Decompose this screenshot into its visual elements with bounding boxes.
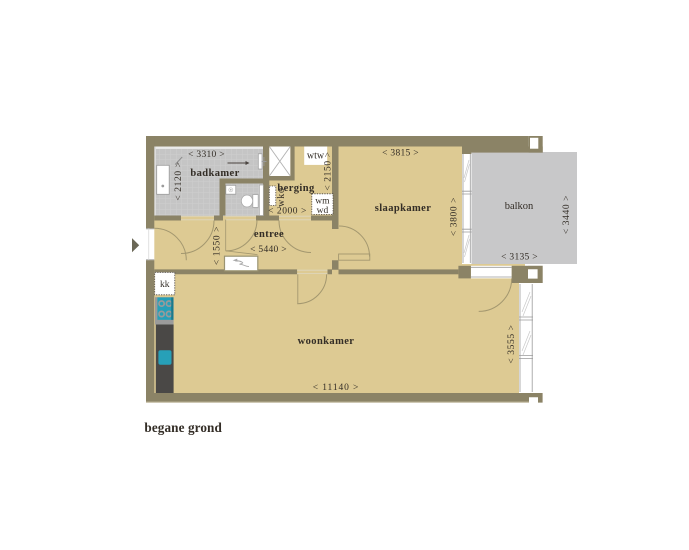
svg-text:slaapkamer: slaapkamer [375, 203, 432, 214]
svg-text:< 3135 >: < 3135 > [501, 252, 538, 262]
svg-text:wm: wm [315, 196, 330, 206]
svg-text:< 3800 >: < 3800 > [449, 197, 459, 236]
svg-text:< 3815 >: < 3815 > [382, 149, 419, 159]
svg-text:balkon: balkon [505, 201, 534, 212]
svg-text:begane grond: begane grond [144, 420, 222, 435]
svg-text:< 1550 >: < 1550 > [213, 226, 223, 265]
svg-text:< 2000 >: < 2000 > [268, 206, 307, 216]
svg-text:< 11140 >: < 11140 > [313, 383, 360, 393]
svg-text:wtw: wtw [307, 151, 325, 162]
svg-text:< 3440 >: < 3440 > [562, 195, 572, 234]
svg-text:wd: wd [317, 206, 329, 216]
svg-text:< 2120 >: < 2120 > [174, 161, 184, 200]
svg-text:< 2150 >: < 2150 > [324, 151, 334, 190]
svg-text:kk: kk [160, 280, 170, 290]
svg-text:< 3555 >: < 3555 > [507, 324, 517, 363]
svg-text:< 5440 >: < 5440 > [250, 245, 287, 255]
svg-text:wko: wko [276, 187, 287, 207]
svg-text:< 3310 >: < 3310 > [188, 150, 225, 160]
svg-text:badkamer: badkamer [190, 168, 239, 179]
svg-text:entree: entree [254, 229, 284, 240]
svg-text:woonkamer: woonkamer [298, 336, 355, 347]
